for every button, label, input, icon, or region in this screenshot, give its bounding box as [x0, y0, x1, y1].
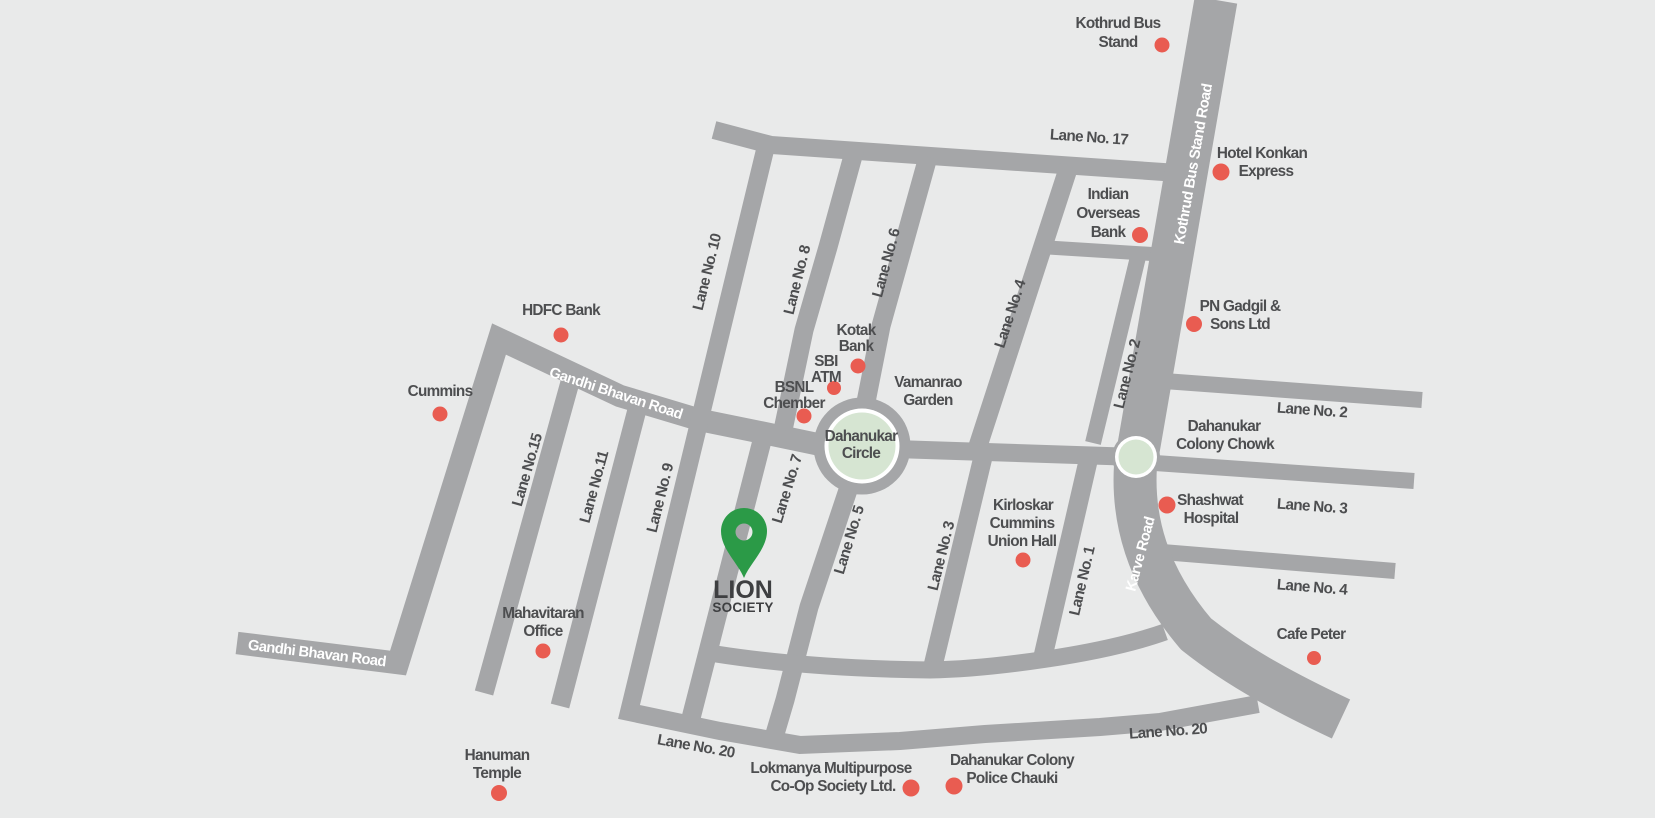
- svg-text:Garden: Garden: [903, 392, 953, 409]
- svg-text:Sons Ltd: Sons Ltd: [1210, 316, 1270, 333]
- svg-text:HDFC Bank: HDFC Bank: [522, 302, 601, 319]
- svg-text:Hospital: Hospital: [1184, 510, 1239, 527]
- svg-text:Overseas: Overseas: [1076, 205, 1139, 222]
- svg-text:BSNL: BSNL: [775, 379, 814, 396]
- svg-text:Union Hall: Union Hall: [988, 533, 1057, 550]
- svg-text:Chember: Chember: [763, 395, 825, 412]
- svg-text:Dahanukar Colony: Dahanukar Colony: [950, 752, 1075, 769]
- svg-text:Cafe Peter: Cafe Peter: [1277, 626, 1346, 643]
- svg-text:Hanuman: Hanuman: [465, 747, 530, 764]
- svg-text:Mahavitaran: Mahavitaran: [502, 605, 584, 622]
- svg-text:Temple: Temple: [473, 765, 521, 782]
- svg-text:Dahanukar: Dahanukar: [1188, 418, 1262, 435]
- svg-text:Lokmanya Multipurpose: Lokmanya Multipurpose: [750, 760, 911, 777]
- svg-text:Circle: Circle: [842, 445, 881, 462]
- svg-text:Vamanrao: Vamanrao: [894, 374, 962, 391]
- svg-text:Bank: Bank: [839, 338, 875, 355]
- svg-text:Stand: Stand: [1099, 34, 1138, 51]
- svg-text:Kothrud Bus: Kothrud Bus: [1076, 15, 1161, 32]
- svg-text:Shashwat: Shashwat: [1177, 492, 1243, 509]
- svg-text:Office: Office: [523, 623, 562, 640]
- svg-text:Kirloskar: Kirloskar: [993, 497, 1054, 514]
- svg-text:Dahanukar: Dahanukar: [825, 428, 899, 445]
- svg-text:Kotak: Kotak: [837, 322, 877, 339]
- svg-text:Cummins: Cummins: [408, 383, 473, 400]
- svg-text:PN Gadgil &: PN Gadgil &: [1200, 298, 1281, 315]
- svg-text:Express: Express: [1239, 163, 1294, 180]
- svg-text:Colony Chowk: Colony Chowk: [1176, 436, 1275, 453]
- svg-text:ATM: ATM: [811, 369, 841, 386]
- svg-text:Co-Op Society Ltd.: Co-Op Society Ltd.: [770, 778, 896, 795]
- svg-text:SOCIETY: SOCIETY: [712, 600, 773, 615]
- svg-text:Hotel Konkan: Hotel Konkan: [1217, 145, 1308, 162]
- svg-text:Police Chauki: Police Chauki: [966, 770, 1058, 787]
- svg-text:Bank: Bank: [1091, 224, 1127, 241]
- svg-text:Indian: Indian: [1088, 186, 1129, 203]
- svg-text:Cummins: Cummins: [990, 515, 1055, 532]
- svg-text:SBI: SBI: [814, 353, 838, 370]
